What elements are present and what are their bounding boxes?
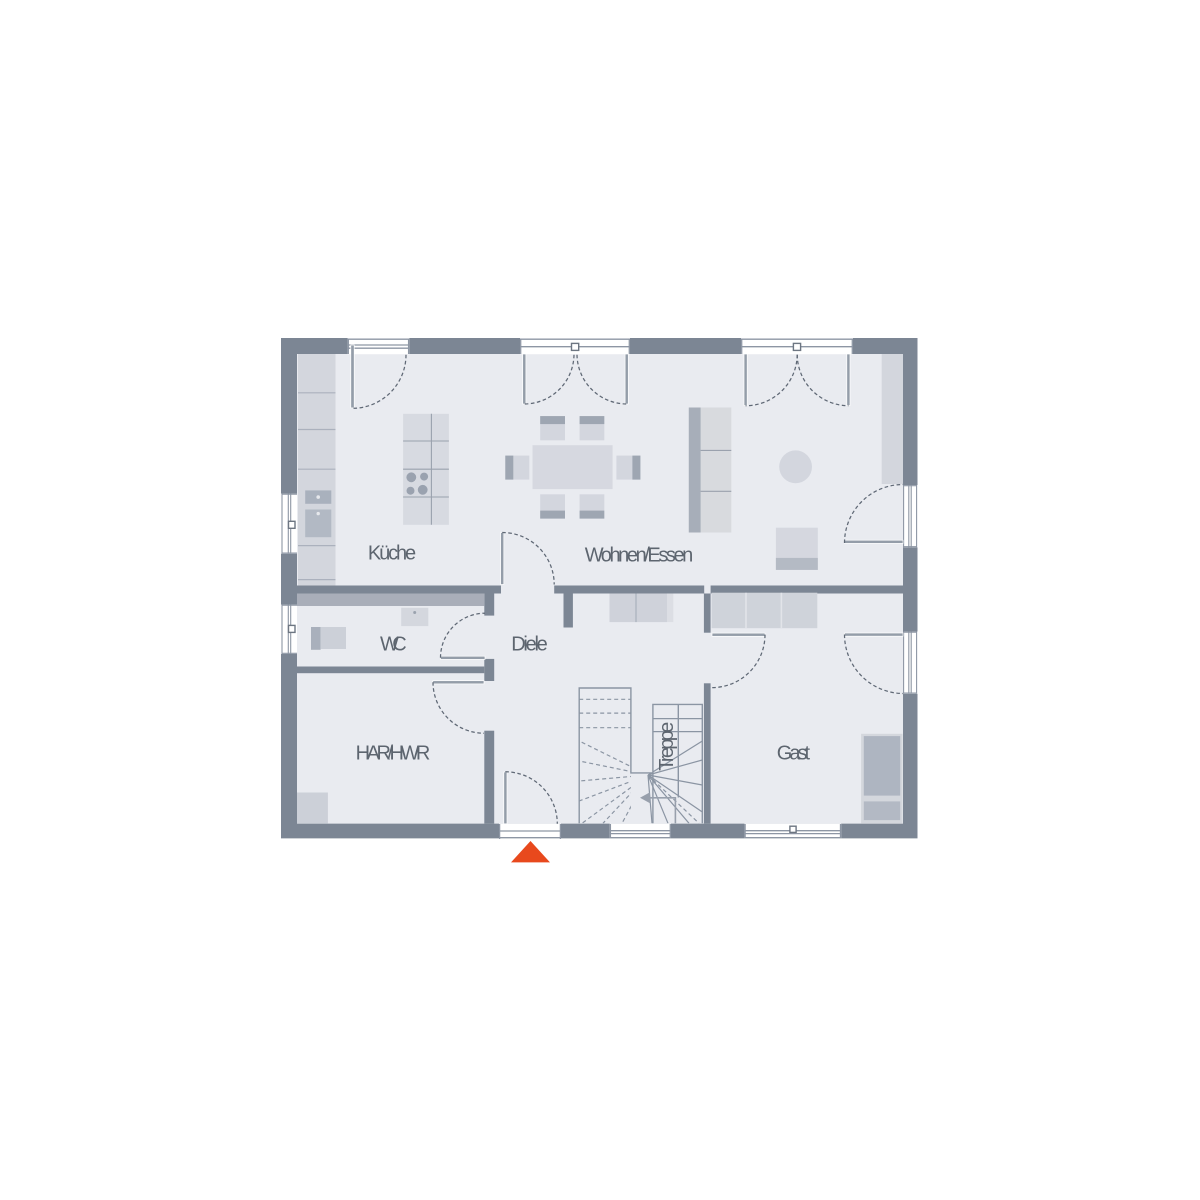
svg-text:Küche: Küche [368, 543, 416, 565]
svg-text:HAR/HWR: HAR/HWR [356, 742, 431, 764]
svg-text:Gast: Gast [777, 742, 811, 764]
svg-text:Diele: Diele [511, 634, 548, 656]
svg-text:Treppe: Treppe [656, 722, 678, 771]
svg-text:Wohnen/Essen: Wohnen/Essen [585, 545, 694, 567]
svg-text:WC: WC [380, 633, 407, 655]
